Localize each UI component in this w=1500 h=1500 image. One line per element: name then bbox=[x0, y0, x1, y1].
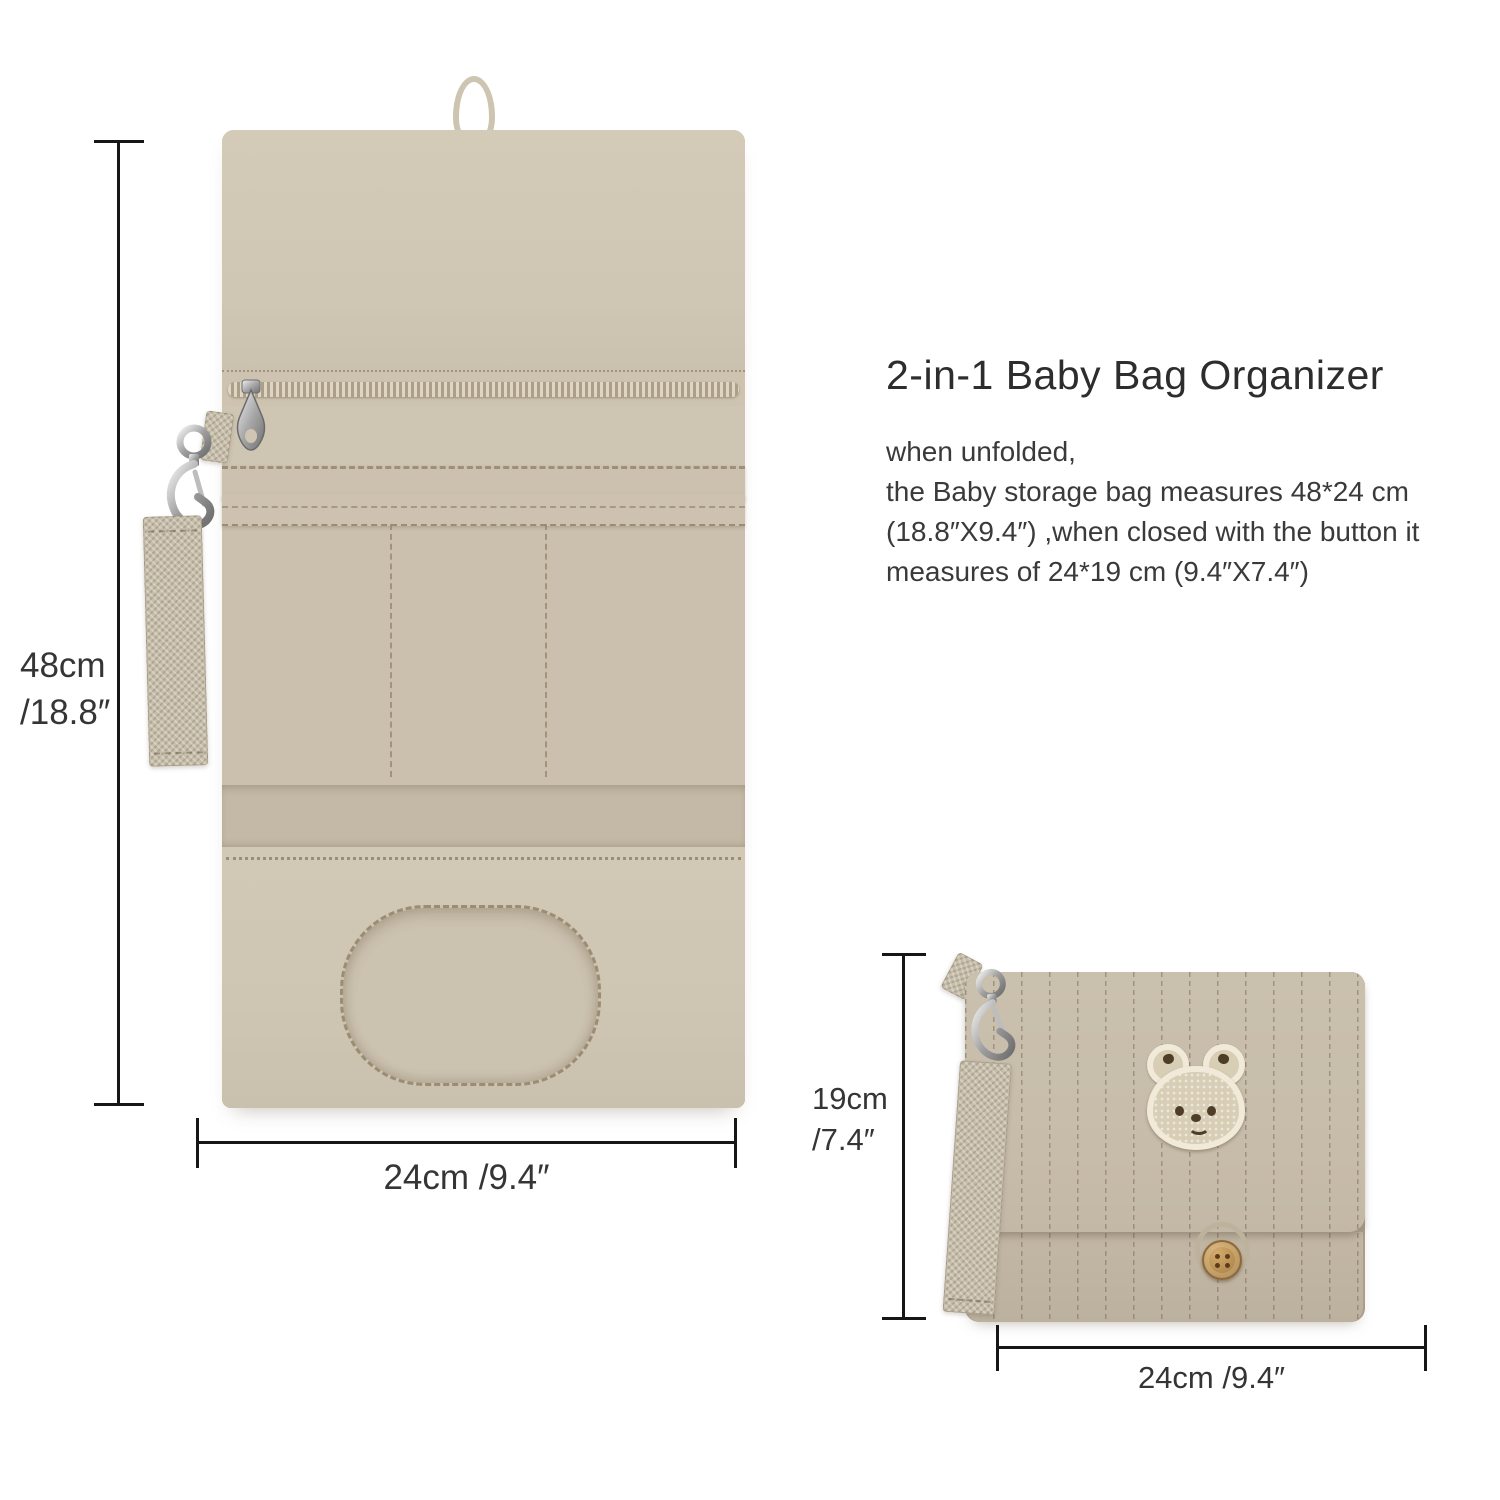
bear-patch-icon bbox=[1147, 1044, 1245, 1152]
bear-eye bbox=[1207, 1106, 1216, 1116]
width-dimension-label-unfolded: 24cm /9.4″ bbox=[196, 1158, 737, 1198]
width-dimension-line-unfolded bbox=[196, 1141, 737, 1144]
wooden-button-icon bbox=[1202, 1240, 1242, 1280]
button-hole bbox=[1225, 1254, 1230, 1259]
height-dimension-label-unfolded: 48cm /18.8″ bbox=[20, 642, 110, 736]
height-dimension-label-folded: 19cm /7.4″ bbox=[812, 1078, 888, 1160]
bear-eye bbox=[1175, 1106, 1184, 1116]
width-dimension-label-folded: 24cm /9.4″ bbox=[996, 1360, 1427, 1396]
fold-crease-band bbox=[222, 785, 745, 847]
height-cm-label: 48cm bbox=[20, 642, 110, 689]
height-inch-label: /7.4″ bbox=[812, 1119, 888, 1160]
unfolded-bag bbox=[222, 130, 745, 1108]
slot-pockets bbox=[222, 494, 745, 785]
unfolded-top-panel bbox=[222, 130, 745, 370]
description-line: the Baby storage bag measures 48*24 cm bbox=[886, 472, 1486, 512]
pocket-top-stitch-band bbox=[222, 494, 745, 526]
pocket-divider-stitch bbox=[545, 524, 547, 777]
height-inch-label: /18.8″ bbox=[20, 689, 110, 736]
height-cm-label: 19cm bbox=[812, 1078, 888, 1119]
folded-bag-body bbox=[967, 1232, 1363, 1322]
description-line: when unfolded, bbox=[886, 432, 1486, 472]
folded-bag bbox=[965, 972, 1365, 1322]
height-dimension-line-unfolded bbox=[117, 140, 120, 1106]
pocket-divider-stitch bbox=[390, 524, 392, 777]
height-dimension-line-folded bbox=[902, 953, 905, 1320]
width-dimension-line-folded bbox=[996, 1346, 1427, 1349]
description-text: when unfolded, the Baby storage bag meas… bbox=[886, 432, 1486, 592]
wipes-dispenser-opening bbox=[340, 905, 601, 1086]
button-hole bbox=[1215, 1263, 1220, 1268]
description-line: measures of 24*19 cm (9.4″X7.4″) bbox=[886, 552, 1486, 592]
bear-mouth bbox=[1188, 1118, 1210, 1135]
zipper-track bbox=[222, 370, 745, 408]
bear-head bbox=[1147, 1066, 1245, 1150]
button-hole bbox=[1225, 1263, 1230, 1268]
page-title: 2-in-1 Baby Bag Organizer bbox=[886, 352, 1384, 398]
button-hole bbox=[1215, 1254, 1220, 1259]
zipper-teeth bbox=[228, 382, 739, 397]
product-dimension-image: 48cm /18.8″ 24cm /9.4″ 2-in-1 Baby Bag O… bbox=[0, 0, 1500, 1500]
description-line: (18.8″X9.4″) ,when closed with the butto… bbox=[886, 512, 1486, 552]
zipper-pocket-panel bbox=[222, 406, 745, 466]
wipes-pocket-panel bbox=[222, 847, 745, 1108]
wrist-strap-webbing bbox=[143, 515, 209, 766]
